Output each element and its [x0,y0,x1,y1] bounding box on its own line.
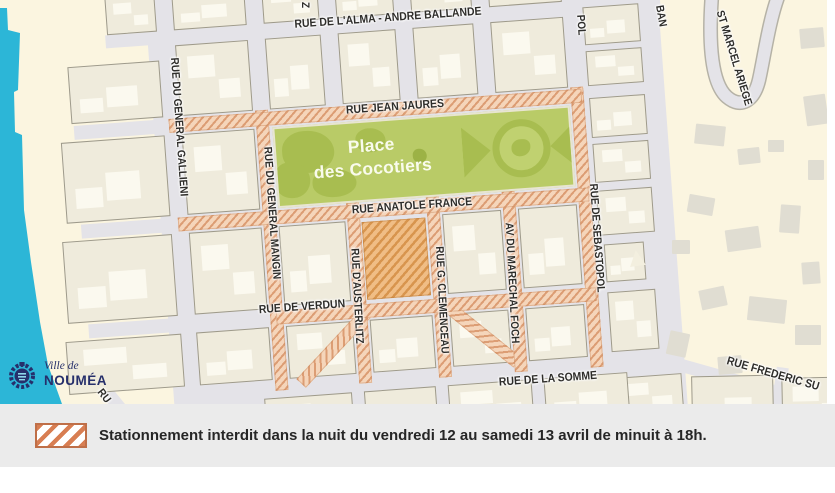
city-block [196,327,273,385]
city-block [370,315,437,372]
city-block [279,221,352,306]
building [808,160,824,180]
map-canvas: RUE DE L'ALMA - ANDRE BALLANDE RUE JEAN … [0,0,835,404]
city-block [592,140,651,183]
city-block [265,35,326,110]
building [747,296,787,324]
place-des-cocotiers-label: Place des Cocotiers [311,130,432,184]
building [795,325,821,345]
legend-bar: Stationnement interdit dans la nuit du v… [0,404,835,467]
building [672,240,690,254]
street-label-top-fragment: Z [299,2,312,8]
city-block [442,210,507,294]
city-block [189,227,268,314]
park-fountain-circle [490,117,552,179]
city-block [62,234,178,324]
city-block [104,0,157,35]
logo-line1: Ville de [44,361,107,373]
building [803,94,829,127]
city-block [182,129,261,215]
city-block [518,204,583,288]
city-block [691,375,774,404]
city-block [525,304,588,361]
footer-whitespace [0,467,835,493]
city-block [61,135,171,223]
logo-line2: NOUMÉA [44,373,107,389]
city-block [175,40,253,116]
building [768,140,784,152]
legend-text: Stationnement interdit dans la nuit du v… [99,427,707,444]
city-block [582,3,641,45]
noumea-crest-icon [8,360,36,390]
building [737,147,761,165]
city-block [586,47,644,86]
no-parking-zone [361,217,431,299]
city-block [171,0,247,30]
building [779,204,801,233]
city-block [338,29,401,104]
city-block [589,94,648,138]
city-block [490,17,568,93]
noumea-logo: Ville de NOUMÉA [8,360,107,390]
city-block [67,61,163,125]
city-block [607,289,659,352]
building [801,261,820,284]
city-block [596,187,655,236]
map-edge [827,0,835,404]
building [725,226,762,253]
infographic: RUE DE L'ALMA - ANDRE BALLANDE RUE JEAN … [0,0,835,493]
no-parking-hatch-swatch [35,423,87,448]
park-lawn-shape [461,126,493,178]
street-label-sebastopol-fragment: POL [574,14,588,35]
building [694,123,726,146]
city-block [412,23,478,98]
building [799,27,825,49]
